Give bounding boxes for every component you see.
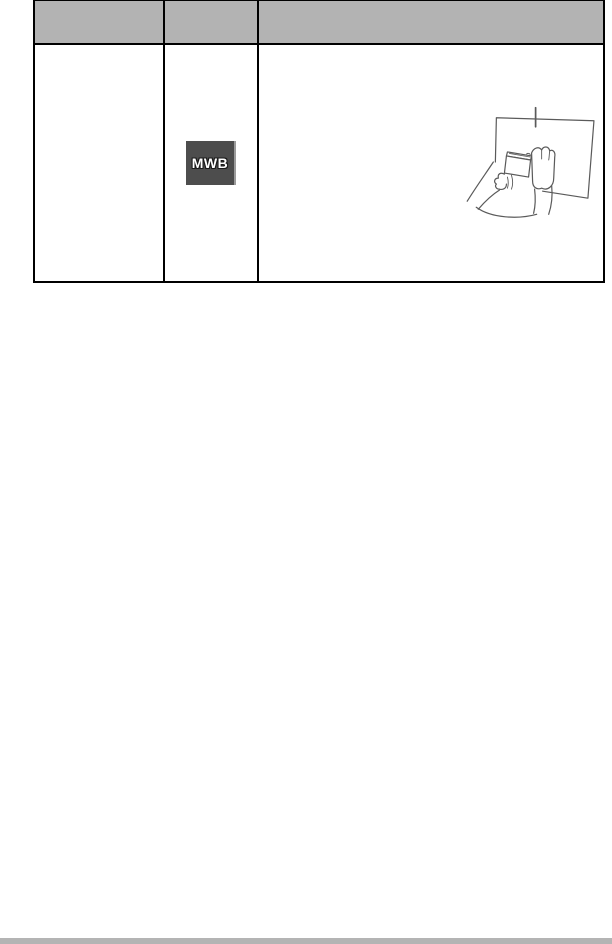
manual-page: MWB [0,0,612,944]
left-hand-fingers [495,173,507,189]
hands-holding-camera-at-white-paper-illustration [259,45,603,281]
right-arm-left-edge [534,189,536,213]
table-header-col-1 [35,1,165,45]
table-cell-description [35,45,165,281]
table-cell-illustration [259,45,603,281]
mwb-mode-icon: MWB [186,141,236,185]
table-cell-mode-icon: MWB [165,45,259,281]
wrist-curve [476,207,536,217]
table-header-col-3 [259,1,603,45]
page-bottom-bar [0,938,612,944]
right-hand [532,147,555,189]
reference-table: MWB [33,0,605,283]
table-header-col-2 [165,1,259,45]
camera-front-face [504,156,530,177]
